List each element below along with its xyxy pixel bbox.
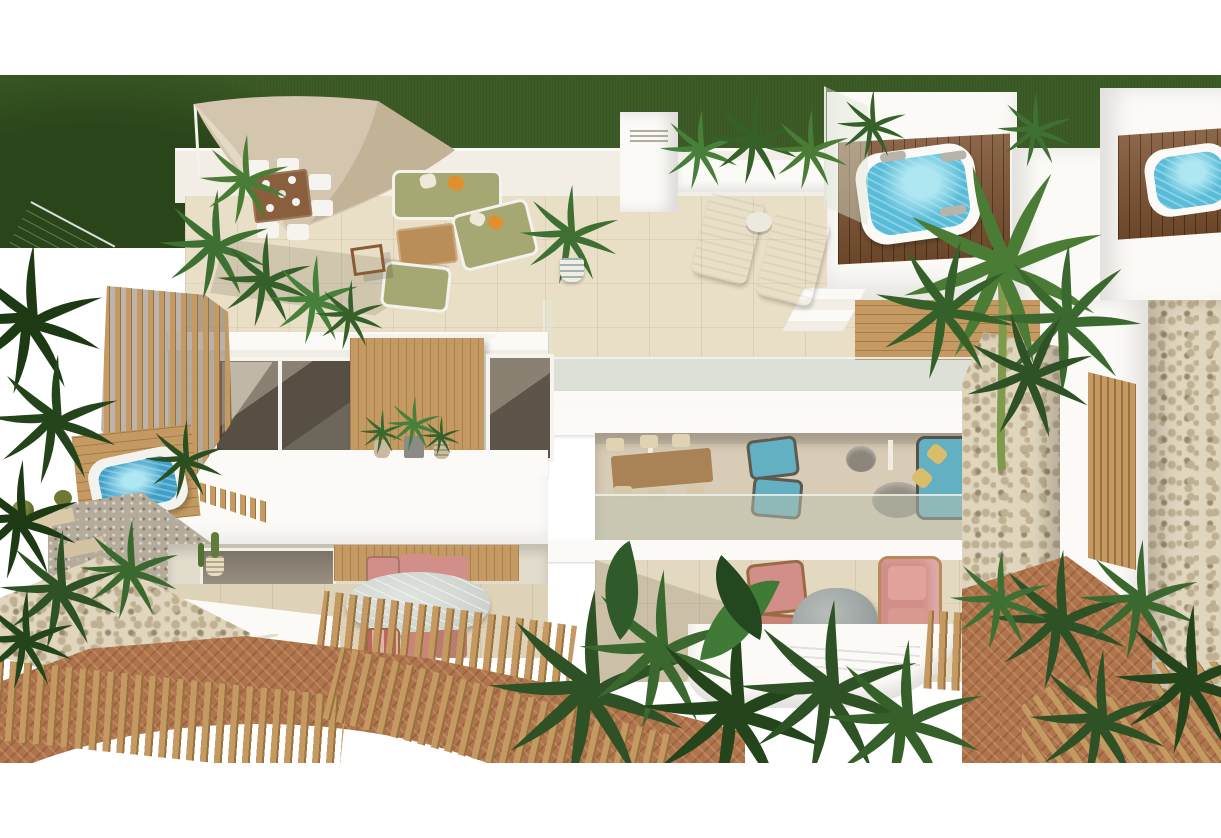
architectural-render bbox=[0, 0, 1221, 838]
palm-pot bbox=[560, 258, 584, 282]
plants bbox=[0, 0, 1221, 838]
top-white-band bbox=[0, 0, 1221, 75]
bottom-white-band bbox=[0, 763, 1221, 838]
